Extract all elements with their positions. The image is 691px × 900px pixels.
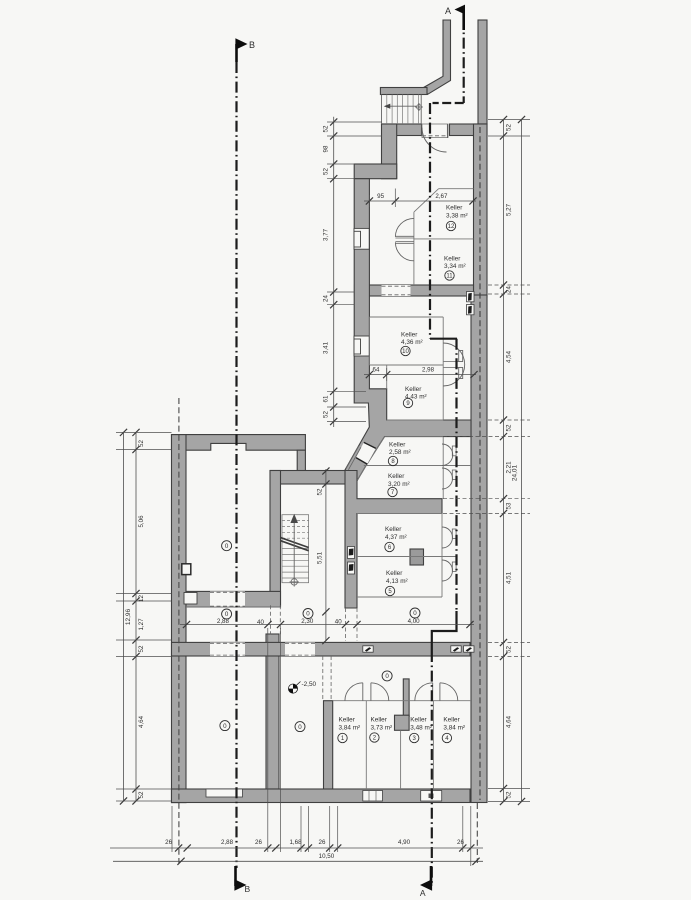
svg-text:40: 40 [257, 619, 264, 626]
svg-text:4,36 m²: 4,36 m² [401, 339, 423, 346]
svg-text:64: 64 [373, 367, 380, 374]
svg-text:-2,50: -2,50 [302, 681, 317, 688]
svg-text:Keller: Keller [388, 473, 405, 480]
svg-text:26: 26 [457, 839, 464, 846]
svg-text:0: 0 [225, 543, 229, 550]
svg-text:1,68: 1,68 [289, 839, 302, 846]
svg-text:4,90: 4,90 [398, 839, 411, 846]
svg-text:52: 52 [138, 440, 145, 447]
svg-text:Keller: Keller [410, 717, 427, 724]
svg-text:12: 12 [138, 595, 145, 602]
svg-text:4,43 m²: 4,43 m² [405, 394, 427, 401]
svg-text:0: 0 [298, 724, 302, 731]
svg-text:4,13 m²: 4,13 m² [386, 578, 408, 585]
svg-text:Keller: Keller [371, 717, 388, 724]
svg-text:3,84 m²: 3,84 m² [443, 724, 465, 731]
svg-text:24,01: 24,01 [512, 464, 519, 481]
svg-text:26: 26 [165, 839, 172, 846]
svg-text:3,20 m²: 3,20 m² [388, 481, 410, 488]
svg-text:Keller: Keller [401, 331, 418, 338]
svg-text:12: 12 [448, 224, 455, 230]
svg-text:12,96: 12,96 [125, 608, 132, 625]
svg-text:52: 52 [506, 646, 513, 653]
svg-text:B: B [249, 40, 255, 50]
svg-text:3,77: 3,77 [323, 228, 330, 241]
svg-text:Keller: Keller [339, 717, 356, 724]
svg-text:0: 0 [385, 673, 389, 680]
svg-text:4,64: 4,64 [138, 715, 145, 728]
svg-text:24: 24 [506, 286, 513, 293]
svg-text:Keller: Keller [446, 205, 463, 212]
svg-text:95: 95 [377, 193, 384, 200]
svg-text:61: 61 [323, 395, 330, 402]
svg-text:2,88: 2,88 [221, 839, 234, 846]
svg-text:5,51: 5,51 [317, 551, 324, 564]
svg-text:98: 98 [323, 145, 330, 152]
svg-text:3,73 m²: 3,73 m² [371, 724, 393, 731]
svg-text:52: 52 [506, 791, 513, 798]
svg-text:4,64: 4,64 [506, 715, 513, 728]
svg-text:26: 26 [255, 839, 262, 846]
svg-text:0: 0 [413, 610, 417, 617]
svg-text:0: 0 [223, 723, 227, 730]
svg-text:Keller: Keller [389, 441, 406, 448]
svg-text:5,06: 5,06 [138, 515, 145, 528]
svg-text:52: 52 [323, 125, 330, 132]
svg-text:4,54: 4,54 [506, 350, 513, 363]
svg-text:A: A [445, 6, 451, 16]
svg-text:Keller: Keller [443, 717, 460, 724]
svg-text:52: 52 [138, 645, 145, 652]
svg-text:Keller: Keller [385, 526, 402, 533]
svg-text:5,27: 5,27 [506, 203, 513, 216]
svg-text:2,30: 2,30 [301, 618, 314, 625]
svg-text:4,51: 4,51 [506, 571, 513, 584]
svg-text:40: 40 [335, 618, 342, 625]
svg-text:10,50: 10,50 [319, 853, 335, 860]
svg-text:2,58 m²: 2,58 m² [389, 449, 411, 456]
svg-text:3,34 m²: 3,34 m² [444, 263, 466, 270]
svg-text:Keller: Keller [405, 386, 422, 393]
svg-text:52: 52 [323, 168, 330, 175]
svg-text:2,67: 2,67 [435, 193, 448, 200]
svg-text:53: 53 [506, 502, 513, 509]
svg-text:0: 0 [306, 611, 310, 618]
svg-text:52: 52 [323, 411, 330, 418]
svg-text:1,27: 1,27 [138, 618, 145, 631]
svg-text:52: 52 [506, 124, 513, 131]
svg-text:11: 11 [446, 274, 453, 280]
svg-text:2,88: 2,88 [217, 618, 230, 625]
svg-text:52: 52 [506, 424, 513, 431]
svg-text:3,38 m²: 3,38 m² [446, 212, 468, 219]
svg-text:10: 10 [402, 349, 409, 355]
svg-text:3,41: 3,41 [323, 341, 330, 354]
svg-text:Keller: Keller [386, 570, 403, 577]
svg-text:4,37 m²: 4,37 m² [385, 534, 407, 541]
svg-text:2,98: 2,98 [422, 367, 435, 374]
svg-text:3,48 m²: 3,48 m² [410, 724, 432, 731]
svg-text:B: B [245, 884, 251, 894]
svg-text:A: A [420, 888, 426, 898]
svg-text:26: 26 [319, 839, 326, 846]
svg-text:24: 24 [323, 295, 330, 302]
svg-text:Keller: Keller [444, 255, 461, 262]
svg-text:3,84 m²: 3,84 m² [339, 724, 361, 731]
svg-text:52: 52 [317, 488, 324, 495]
svg-text:52: 52 [138, 791, 145, 798]
svg-text:2,21: 2,21 [506, 461, 513, 474]
svg-text:4,00: 4,00 [408, 618, 421, 625]
